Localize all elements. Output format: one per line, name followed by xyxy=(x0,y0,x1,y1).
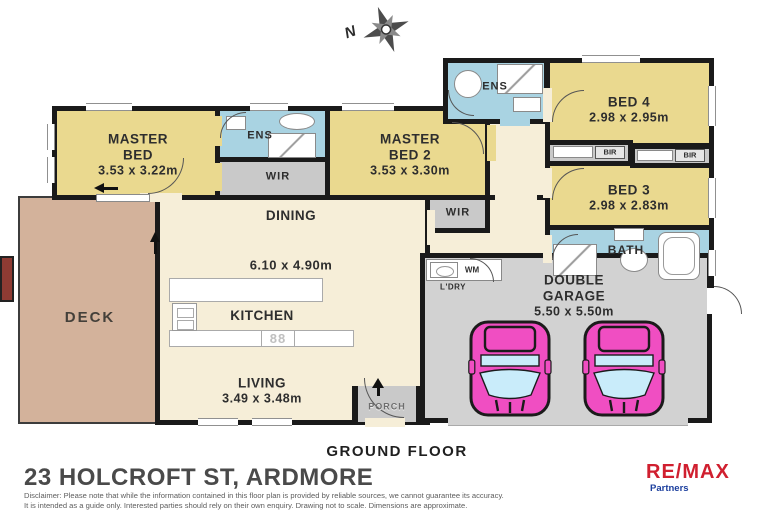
kitchen-label: KITCHEN xyxy=(230,308,294,324)
bed4-label-block: BED 4 2.98 x 2.95m xyxy=(589,95,669,126)
bir2-slider xyxy=(637,150,673,161)
remax-wordmark: RE/MAX xyxy=(646,462,730,482)
car-icon xyxy=(468,318,552,418)
master-bed-label-block: MASTER BED 3.53 x 3.22m xyxy=(97,132,179,179)
window xyxy=(708,178,716,218)
master-bed-dims: 3.53 x 3.22m xyxy=(97,164,179,179)
ens1-label: ENS xyxy=(247,130,273,143)
washing-machine-drum xyxy=(436,266,454,277)
shower-icon xyxy=(268,133,316,158)
burner-dot xyxy=(177,308,194,318)
laundry-label: L'DRY xyxy=(440,282,466,291)
stove-icon xyxy=(172,303,197,331)
opening-ens2-door xyxy=(500,117,530,126)
vanity-icon xyxy=(513,97,541,112)
bed4-label: BED 4 xyxy=(589,95,669,111)
ens2-label: ENS xyxy=(482,81,508,94)
bir2-label: BIR xyxy=(684,152,697,161)
wm-label: WM xyxy=(465,265,479,274)
dining-label: DINING xyxy=(266,208,316,224)
opening-hall-corridor xyxy=(495,192,537,201)
deck-label: DECK xyxy=(65,309,116,327)
opening-bed4-door xyxy=(543,88,552,122)
deck-door-arrow xyxy=(94,183,104,193)
burner-dot xyxy=(177,320,194,330)
basin-icon xyxy=(279,113,315,130)
window xyxy=(86,103,132,111)
opening-porch-door xyxy=(365,418,405,427)
washing-machine-icon xyxy=(430,262,458,278)
window xyxy=(708,250,716,276)
bed4-dims: 2.98 x 2.95m xyxy=(589,111,669,126)
window xyxy=(47,157,55,183)
wir1-label: WIR xyxy=(266,171,290,184)
garage-label-block: DOUBLE GARAGE 5.50 x 5.50m xyxy=(528,273,620,320)
bed3-label: BED 3 xyxy=(589,183,669,199)
opening-bath-door xyxy=(543,235,552,263)
opening-bed3-door xyxy=(543,168,552,198)
cooktop-icon: 88 xyxy=(261,330,295,347)
dining-entry-arrow-stem xyxy=(154,241,157,254)
window xyxy=(250,103,288,111)
vanity-icon xyxy=(614,228,644,241)
bir1-label: BIR xyxy=(604,149,617,158)
master-bed2-label: MASTER BED 2 xyxy=(369,132,451,164)
floor-title: GROUND FLOOR xyxy=(326,443,467,461)
living-label-block: LIVING 3.49 x 3.48m xyxy=(222,376,302,407)
master-bed2-label-block: MASTER BED 2 3.53 x 3.30m xyxy=(369,132,451,179)
car-2 xyxy=(582,318,666,423)
opening-master2-door xyxy=(487,125,496,161)
master-bed-label: MASTER BED xyxy=(97,132,179,164)
opening-wir1-door xyxy=(213,163,222,191)
disclaimer: Disclaimer: Please note that while the i… xyxy=(24,491,504,512)
window xyxy=(198,418,238,426)
door-arc-garage-side xyxy=(714,286,742,314)
page-title: 23 HOLCROFT ST, ARDMORE xyxy=(24,464,373,492)
car-icon xyxy=(582,318,666,418)
porch-entry-arrow-stem xyxy=(377,387,380,396)
garage-dims: 5.50 x 5.50m xyxy=(528,305,620,320)
bathtub-inner xyxy=(663,237,695,275)
remax-logo: RE/MAX Partners xyxy=(646,462,730,494)
bath-label: BATH xyxy=(608,243,644,257)
bathtub-icon xyxy=(658,232,700,280)
floorplan-page: { "page": { "title": "23 HOLCROFT ST, AR… xyxy=(0,0,768,512)
window xyxy=(47,124,55,150)
deck-steps xyxy=(0,256,14,302)
disclaimer-line1: Disclaimer: Please note that while the i… xyxy=(24,491,504,501)
compass-icon: N xyxy=(328,0,424,62)
remax-partners-label: Partners xyxy=(650,483,730,494)
master-bed2-dims: 3.53 x 3.30m xyxy=(369,164,451,179)
bed3-label-block: BED 3 2.98 x 2.83m xyxy=(589,183,669,214)
deck-door-arrow-stem xyxy=(104,187,118,190)
car-1 xyxy=(468,318,552,423)
disclaimer-line2: It is intended as a guide only. Interest… xyxy=(24,501,504,511)
bir1-slider xyxy=(553,146,593,158)
window xyxy=(252,418,292,426)
garage-label: DOUBLE GARAGE xyxy=(528,273,620,305)
window xyxy=(342,103,394,111)
wir2-label: WIR xyxy=(446,207,470,220)
living-label: LIVING xyxy=(222,376,302,392)
compass-rose: N xyxy=(328,0,424,67)
living-dims: 3.49 x 3.48m xyxy=(222,392,302,407)
dining-dims: 6.10 x 4.90m xyxy=(250,257,333,272)
bed3-dims: 2.98 x 2.83m xyxy=(589,199,669,214)
deck-sliding-door xyxy=(96,194,150,202)
opening-dining-hall xyxy=(427,210,435,245)
kitchen-bench-top xyxy=(169,278,323,302)
window xyxy=(708,86,716,126)
window xyxy=(582,55,640,63)
porch-label: PORCH xyxy=(368,402,406,413)
compass-north-label: N xyxy=(342,22,359,42)
